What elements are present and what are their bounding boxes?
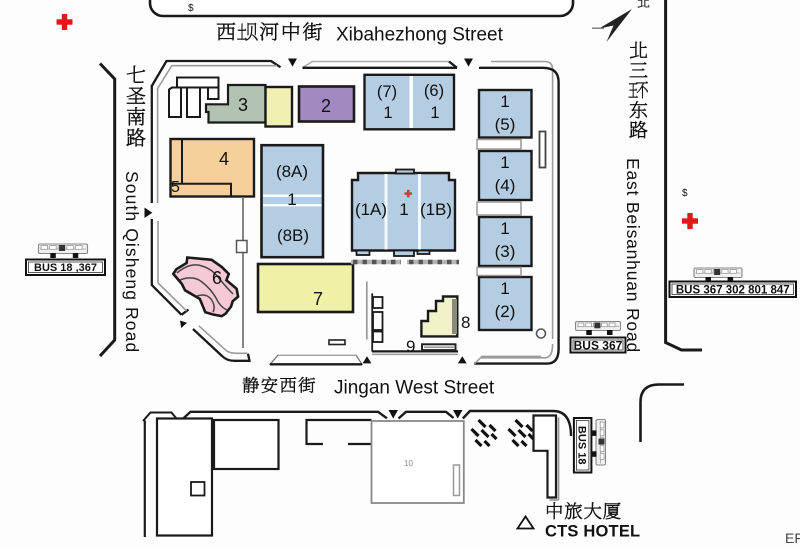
svg-text:1: 1: [500, 279, 509, 298]
svg-text:Xibahezhong Street: Xibahezhong Street: [336, 25, 504, 46]
svg-text:CTS HOTEL: CTS HOTEL: [545, 523, 640, 541]
svg-text:South Qisheng Road: South Qisheng Road: [122, 171, 142, 353]
svg-text:(1A): (1A): [355, 200, 387, 219]
svg-text:(2): (2): [495, 302, 516, 321]
svg-text:3: 3: [238, 95, 248, 115]
svg-text:$: $: [682, 188, 688, 199]
svg-text:BUS 367: BUS 367: [574, 338, 623, 352]
svg-text:$: $: [188, 3, 194, 14]
svg-text:1: 1: [430, 104, 439, 122]
svg-text:(7): (7): [377, 83, 397, 101]
svg-text:1: 1: [500, 219, 509, 238]
svg-text:BUS 367 302 801 847: BUS 367 302 801 847: [676, 284, 790, 296]
svg-text:(1B): (1B): [420, 200, 452, 219]
svg-text:(4): (4): [495, 176, 516, 195]
svg-text:(8B): (8B): [277, 226, 309, 245]
svg-text:(3): (3): [495, 242, 516, 261]
svg-text:4: 4: [219, 149, 229, 169]
svg-text:1: 1: [399, 200, 408, 219]
svg-text:EF: EF: [785, 530, 800, 544]
svg-text:10: 10: [404, 459, 413, 468]
svg-text:6: 6: [212, 268, 222, 288]
svg-text:1: 1: [500, 92, 509, 111]
svg-text:(5): (5): [495, 115, 516, 134]
svg-text:BUS 18 ,367: BUS 18 ,367: [34, 262, 97, 274]
svg-text:8: 8: [461, 313, 470, 332]
svg-text:5: 5: [171, 179, 180, 196]
svg-text:(8A): (8A): [276, 162, 308, 181]
svg-text:2: 2: [321, 96, 331, 116]
svg-text:Jingan West Street: Jingan West Street: [334, 378, 495, 399]
svg-text:BUS 18: BUS 18: [576, 426, 588, 465]
svg-text:7: 7: [313, 289, 323, 309]
svg-text:(6): (6): [424, 82, 444, 100]
svg-text:East Beisanhuan Road: East Beisanhuan Road: [623, 158, 643, 353]
svg-text:1: 1: [383, 104, 392, 122]
svg-text:9: 9: [406, 337, 415, 356]
svg-text:1: 1: [500, 153, 509, 172]
svg-text:1: 1: [287, 190, 296, 209]
